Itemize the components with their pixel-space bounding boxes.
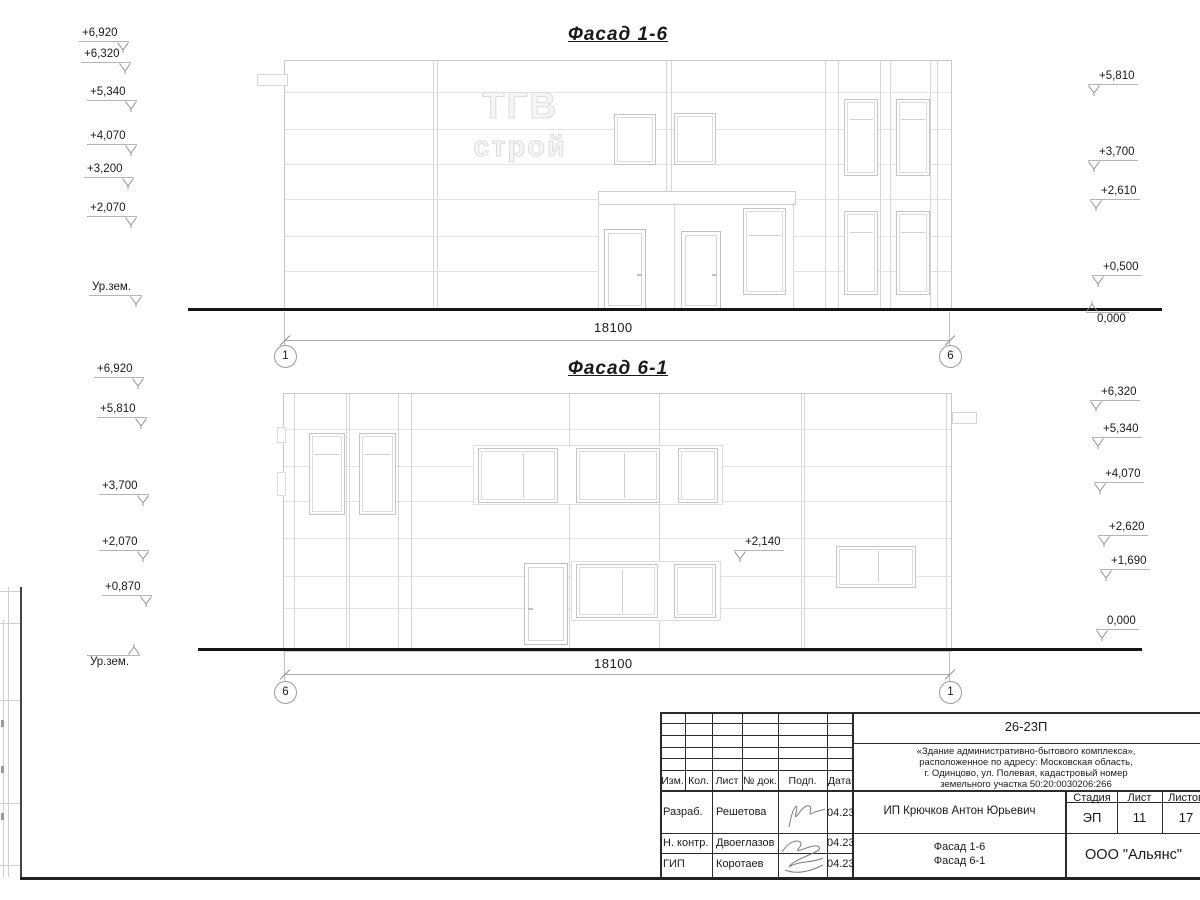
window <box>614 114 656 165</box>
panel-joint <box>930 61 931 310</box>
elevation-arrow-down-icon <box>1087 161 1101 172</box>
elevation-mark: +0,870 <box>102 581 152 607</box>
staff-date: 04.23 <box>827 807 852 819</box>
elevation-arrow-down-icon <box>124 101 138 112</box>
entrance-door <box>681 231 721 310</box>
elevation-arrow-down-icon <box>136 495 150 506</box>
window <box>576 564 658 618</box>
facade-1-6-drawing: ТГВ строй <box>284 60 952 311</box>
window <box>309 433 345 515</box>
elevation-mark: +4,070 <box>87 130 137 156</box>
elevation-mark: +3,700 <box>99 480 149 506</box>
elevation-mark: +2,070 <box>87 202 137 228</box>
company-name: ООО "Альянс" <box>1067 847 1200 863</box>
stage-header: Стадия <box>1067 792 1117 804</box>
signature <box>781 797 829 831</box>
titleblock-line <box>852 712 854 878</box>
titleblock-line <box>660 712 1200 714</box>
staff-date: 04.23 <box>827 837 852 849</box>
dimension-line <box>284 674 950 675</box>
elevation-arrow-down-icon <box>139 596 153 607</box>
panel-joint <box>937 61 938 310</box>
window <box>743 208 786 295</box>
entrance-wall <box>598 203 599 310</box>
panel-joint <box>349 394 350 651</box>
window <box>896 211 930 295</box>
sheets-header: Листов <box>1162 792 1200 804</box>
elevation-arrow-up-icon <box>1085 301 1099 312</box>
elevation-arrow-down-icon <box>124 145 138 156</box>
titleblock-line <box>660 735 852 736</box>
frame-line <box>0 700 20 701</box>
frame-line <box>8 587 9 877</box>
frame-line <box>3 620 4 877</box>
ground-line <box>188 308 1162 311</box>
project-description: земельного участка 50:20:0030206:266 <box>858 779 1194 790</box>
window <box>674 113 716 165</box>
col-header: Изм. <box>660 775 685 787</box>
staff-role: ГИП <box>663 858 685 870</box>
staff-date: 04.23 <box>827 858 852 870</box>
axis-bubble: 6 <box>274 681 297 704</box>
col-header: Дата <box>827 775 852 787</box>
elevation-arrow-down-icon <box>1087 85 1101 96</box>
logo-text: ТГВ <box>455 87 585 124</box>
titleblock-line <box>660 833 1200 834</box>
panel-joint <box>569 394 570 651</box>
staff-name: Двоеглазов <box>716 837 774 849</box>
frame-line <box>0 865 20 866</box>
window <box>844 211 878 295</box>
drawing-sheet: Фасад 1-6 ТГВ строй <box>0 0 1200 900</box>
axis-bubble: 6 <box>939 345 962 368</box>
project-description: «Здание административно-бытового комплек… <box>858 746 1194 757</box>
dimension-label: 18100 <box>594 320 633 335</box>
entrance-wall <box>793 203 794 310</box>
sheet-content: Фасад 6-1 <box>854 855 1065 867</box>
col-header: Лист <box>712 775 742 787</box>
dimension-label: 18100 <box>594 656 633 671</box>
elevation-arrow-down-icon <box>136 551 150 562</box>
elevation-mark: +6,920 <box>94 363 144 389</box>
elevation-mark: 0,000 <box>1086 301 1129 327</box>
elevation-mark: +5,810 <box>97 403 147 429</box>
entrance-door <box>524 563 568 645</box>
project-description: расположенное по адресу: Московская обла… <box>858 757 1194 768</box>
entrance-canopy <box>598 191 796 205</box>
sheets-value: 17 <box>1162 810 1200 825</box>
panel-joint <box>890 61 891 310</box>
elevation-arrow-down-icon <box>1089 200 1103 211</box>
elevation-mark: +2,610 <box>1090 185 1140 211</box>
roof-pipe <box>952 412 977 424</box>
window <box>359 433 396 515</box>
col-header: Кол. <box>685 775 712 787</box>
elevation-arrow-down-icon <box>121 178 135 189</box>
panel-joint <box>946 394 947 651</box>
panel-joint <box>804 394 805 651</box>
window <box>836 546 916 588</box>
col-header: Подп. <box>778 775 827 787</box>
signature <box>778 834 828 876</box>
wall-bracket <box>277 472 286 496</box>
elevation-mark: +5,340 <box>87 86 137 112</box>
panel-joint <box>398 394 399 651</box>
elevation-arrow-down-icon <box>1089 401 1103 412</box>
entrance-wall <box>674 203 675 310</box>
elevation-arrow-down-icon <box>1091 276 1105 287</box>
axis-bubble: 1 <box>274 345 297 368</box>
wall-bracket <box>277 427 286 443</box>
facade-6-1-drawing <box>283 393 952 652</box>
panel-joint <box>825 61 826 310</box>
elevation-mark: +5,340 <box>1092 423 1142 449</box>
frame-stamp-mark <box>1 766 4 773</box>
frame-border-bottom <box>20 877 1200 880</box>
sheet-header: Лист <box>1117 792 1162 804</box>
frame-stamp-mark <box>1 813 4 820</box>
window <box>678 448 718 503</box>
titleblock-line <box>660 747 852 748</box>
panel-joint <box>671 61 672 191</box>
doc-number: 26-23П <box>852 719 1200 734</box>
elevation-mark: +2,140 <box>734 536 784 562</box>
elevation-mark: Ур.зем. <box>89 281 142 307</box>
entrance-door <box>604 229 646 310</box>
elevation-mark: +4,070 <box>1094 468 1144 494</box>
window <box>896 99 930 176</box>
siding-line <box>284 538 951 539</box>
logo-text: строй <box>455 133 585 162</box>
elevation-mark: +0,500 <box>1092 261 1142 287</box>
titleblock-line <box>852 743 1200 744</box>
titleblock-line <box>660 723 852 724</box>
project-description: г. Одинцово, ул. Полевая, кадастровый но… <box>858 768 1194 779</box>
staff-name: Решетова <box>716 806 766 818</box>
elevation-arrow-down-icon <box>124 217 138 228</box>
col-header: № док. <box>742 775 778 787</box>
elevation-mark: +3,700 <box>1088 146 1138 172</box>
panel-joint <box>666 61 667 191</box>
panel-joint <box>411 394 412 651</box>
siding-line <box>285 92 951 93</box>
frame-stamp-mark <box>1 720 4 727</box>
sheet-content: Фасад 1-6 <box>854 841 1065 853</box>
siding-line <box>284 429 951 430</box>
window <box>478 448 558 503</box>
elevation-mark: +2,620 <box>1098 521 1148 547</box>
elevation-arrow-up-icon <box>127 644 141 655</box>
window <box>576 448 660 503</box>
roof-pipe <box>257 74 288 86</box>
panel-joint <box>346 394 347 651</box>
window <box>674 564 716 618</box>
client-name: ИП Крючков Антон Юрьевич <box>854 805 1065 817</box>
staff-role: Разраб. <box>663 806 703 818</box>
axis-bubble: 1 <box>939 681 962 704</box>
elevation-arrow-down-icon <box>1091 438 1105 449</box>
panel-joint <box>801 394 802 651</box>
frame-border-left <box>20 587 22 880</box>
elevation-arrow-down-icon <box>1093 483 1107 494</box>
stage-value: ЭП <box>1067 810 1117 825</box>
elevation-mark: +3,200 <box>84 163 134 189</box>
panel-joint <box>433 61 434 310</box>
sheet-value: 11 <box>1117 810 1162 825</box>
panel-joint <box>294 394 295 651</box>
elevation-mark: +6,320 <box>1090 386 1140 412</box>
frame-line <box>0 623 20 624</box>
panel-joint <box>880 61 881 310</box>
titleblock-line <box>660 758 852 759</box>
titleblock-line <box>660 770 852 771</box>
facade-1-6-title: Фасад 1-6 <box>568 24 668 46</box>
elevation-arrow-down-icon <box>134 418 148 429</box>
elevation-mark: +2,070 <box>99 536 149 562</box>
elevation-arrow-down-icon <box>118 63 132 74</box>
titleblock-line <box>660 712 662 880</box>
elevation-arrow-down-icon <box>1099 570 1113 581</box>
elevation-mark: Ур.зем. <box>87 644 140 670</box>
window <box>844 99 878 176</box>
elevation-arrow-down-icon <box>1097 536 1111 547</box>
elevation-arrow-down-icon <box>129 296 143 307</box>
staff-role: Н. контр. <box>663 837 708 849</box>
frame-line <box>0 591 20 592</box>
elevation-mark: +6,320 <box>81 48 131 74</box>
elevation-arrow-down-icon <box>733 551 747 562</box>
elevation-arrow-down-icon <box>131 378 145 389</box>
elevation-arrow-down-icon <box>1095 630 1109 641</box>
panel-joint <box>838 61 839 310</box>
dimension-line <box>284 340 950 341</box>
staff-name: Коротаев <box>716 858 764 870</box>
elevation-mark: +1,690 <box>1100 555 1150 581</box>
frame-line <box>0 803 20 804</box>
ground-line <box>198 648 1142 651</box>
elevation-mark: +5,810 <box>1088 70 1138 96</box>
facade-6-1-title: Фасад 6-1 <box>568 358 668 380</box>
panel-joint <box>437 61 438 310</box>
elevation-mark: 0,000 <box>1096 615 1139 641</box>
